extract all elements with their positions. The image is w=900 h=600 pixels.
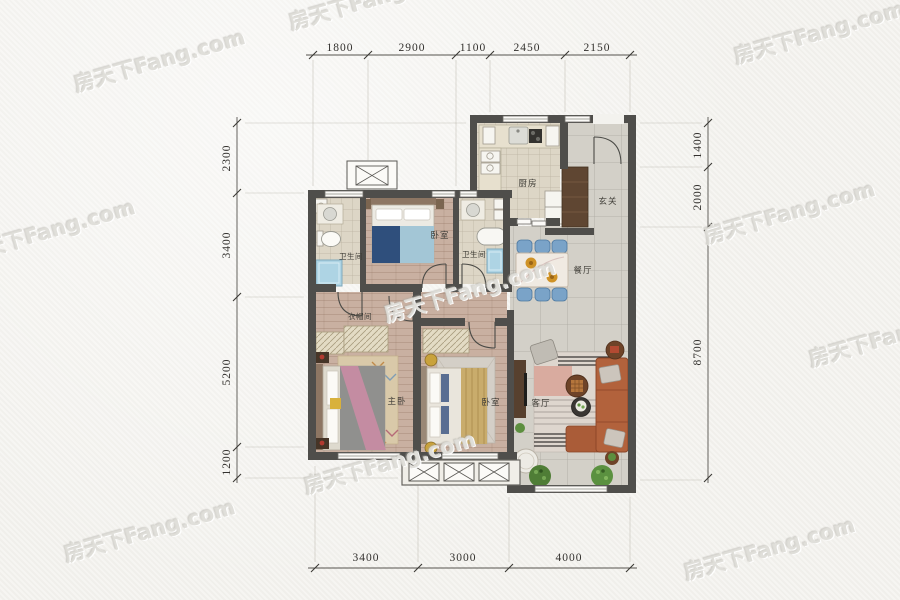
kitchen-slider (532, 221, 546, 226)
dim-bottom-1: 3400 (353, 552, 380, 564)
dim-top-2: 2900 (399, 42, 426, 54)
lamp (425, 354, 437, 366)
dim-top-4: 2450 (514, 42, 541, 54)
label-kitchen: 厨房 (518, 178, 537, 189)
sofa-chaise (566, 426, 600, 452)
label-master-bedroom: 主卧 (387, 396, 406, 407)
label-bedroom1: 卧室 (430, 230, 449, 241)
kitchen-slider (517, 219, 531, 224)
shoe-cabinet (562, 167, 588, 227)
dim-top-5: 2150 (584, 42, 611, 54)
dining-set (516, 240, 568, 301)
pillow (599, 364, 621, 383)
bathroom1-fixtures (315, 199, 343, 286)
dim-left-3: 5200 (221, 359, 233, 386)
floorplan-page: 1800 2900 1100 2450 2150 3400 3000 4000 … (0, 0, 900, 600)
bath2-tub (477, 228, 506, 245)
dim-right-2: 2000 (692, 184, 704, 211)
label-living: 客厅 (531, 398, 550, 409)
dim-right-1: 1400 (692, 132, 704, 159)
dim-top-3: 1100 (460, 42, 487, 54)
water-heater (546, 126, 559, 146)
floor-plan-svg: 1800 2900 1100 2450 2150 3400 3000 4000 … (0, 0, 900, 600)
dim-left-1: 2300 (221, 145, 233, 172)
plant (591, 465, 613, 487)
bath1-shower (316, 260, 342, 286)
nightstand (436, 199, 444, 209)
tv (524, 373, 527, 406)
dim-left-4: 1200 (221, 449, 233, 476)
plant (515, 423, 525, 433)
pillow (604, 428, 626, 448)
dim-right-3: 8700 (692, 339, 704, 366)
dim-left-2: 3400 (221, 232, 233, 259)
label-bathroom1: 卫生间 (339, 251, 363, 261)
dim-bottom-3: 4000 (556, 552, 583, 564)
label-bedroom2: 卧室 (481, 397, 500, 408)
plant (529, 465, 551, 487)
master-bed (316, 352, 398, 450)
label-foyer: 玄关 (598, 196, 617, 207)
entry-opening (593, 114, 624, 124)
stove (529, 129, 542, 143)
dim-bottom-2: 3000 (450, 552, 477, 564)
dim-top-1: 1800 (327, 42, 354, 54)
corridor-floor (316, 292, 507, 318)
label-bathroom2: 卫生间 (462, 249, 486, 259)
bath1-toilet (322, 232, 341, 247)
label-cloakroom: 衣帽间 (348, 311, 372, 321)
label-dining: 餐厅 (573, 266, 592, 276)
